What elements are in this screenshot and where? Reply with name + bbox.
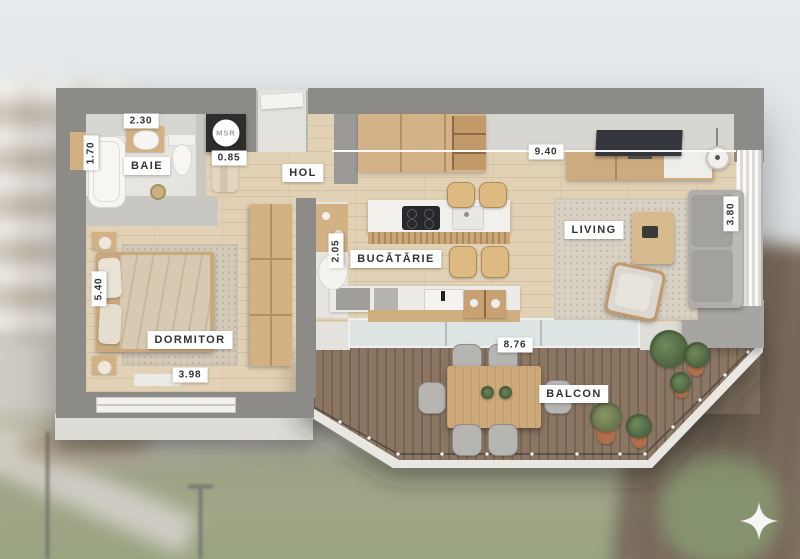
balcony-chair — [452, 424, 482, 456]
bathroom-vanity — [126, 126, 164, 152]
shower-drain — [150, 184, 166, 200]
table-plant — [481, 386, 494, 399]
room-label-balcon: BALCON — [539, 385, 608, 403]
counter-shelf-boxes — [464, 290, 506, 318]
armchair — [603, 261, 667, 323]
window-bedroom — [96, 397, 236, 413]
pendant-cord — [716, 128, 718, 146]
nightstand-lamp — [97, 360, 112, 375]
vase — [470, 299, 478, 307]
room-label-living: LIVING — [564, 221, 623, 239]
coffee-table — [632, 212, 674, 264]
balcony-table — [447, 366, 541, 428]
balcony-chair — [418, 382, 446, 414]
toilet-bowl — [172, 144, 192, 176]
msr-badge-label: MSR — [216, 129, 236, 138]
potted-plant — [590, 402, 622, 432]
island-faucet — [464, 212, 469, 217]
island-chair — [481, 246, 509, 278]
background-lamp-post-2 — [199, 487, 202, 559]
burner — [424, 209, 434, 219]
dimension-msr-width: 0.85 — [212, 151, 247, 166]
burner — [407, 219, 417, 229]
room-label-hol: HOL — [282, 164, 323, 182]
cabinet-divider — [444, 114, 446, 172]
dimension-bucatarie-depth: 2.05 — [329, 234, 344, 269]
entrance-niche — [256, 90, 308, 152]
toilet — [168, 134, 194, 176]
kitchen-tall-cabinets — [358, 114, 486, 172]
wall-bathroom-msr — [196, 114, 206, 226]
wall-entrance-stub — [246, 88, 256, 152]
potted-plant — [670, 372, 691, 393]
cooktop — [402, 206, 440, 230]
potted-plant — [626, 414, 652, 438]
dimension-living-depth: 3.80 — [724, 197, 739, 232]
wall-bedroom-hall — [296, 198, 316, 398]
msr-badge: MSR — [213, 120, 240, 147]
potted-plant — [650, 330, 688, 368]
tv-stand — [628, 156, 652, 159]
counter-faucet — [441, 291, 445, 301]
shelf-item — [322, 212, 330, 220]
counter-appliance — [336, 288, 370, 310]
table-decor — [642, 226, 658, 238]
burner — [424, 219, 434, 229]
table-plant — [499, 386, 512, 399]
background-lamp-post-1 — [46, 432, 49, 559]
sofa-cushion — [691, 250, 733, 302]
dimension-dormitor-length: 5.40 — [92, 272, 107, 307]
wardrobe-divider — [270, 204, 272, 366]
dimension-baie-width: 2.30 — [124, 114, 159, 129]
entrance-door — [261, 93, 304, 110]
island-slat-front — [368, 232, 510, 244]
door-mullion — [445, 320, 447, 346]
island-sink — [452, 206, 484, 230]
dimension-baie-depth: 1.70 — [84, 136, 99, 171]
window-glass-line — [97, 404, 235, 406]
tv — [595, 130, 682, 156]
island-chair — [479, 182, 507, 208]
background-lamp-arm — [188, 485, 213, 488]
room-label-bucatarie: BUCĂTĂRIE — [350, 250, 441, 268]
wardrobe — [250, 204, 292, 366]
nightstand-lamp — [98, 236, 112, 250]
room-label-dormitor: DORMITOR — [148, 331, 233, 349]
dimension-dormitor-width: 3.98 — [173, 368, 208, 383]
plant-pot — [597, 430, 615, 444]
wardrobe-shelf-line — [250, 314, 292, 316]
wall-top-right — [308, 88, 764, 114]
cabinet-open-shelf — [452, 116, 486, 170]
vanity-sink — [133, 130, 159, 150]
floorplan-render: MSR — [0, 0, 800, 559]
armchair-cushion — [614, 272, 654, 312]
shelf-line — [454, 152, 486, 154]
room-label-baie: BAIE — [124, 157, 170, 175]
vase — [491, 299, 500, 308]
wall-hall-stub — [334, 114, 358, 184]
dimension-living-kitchen-length: 9.40 — [529, 145, 564, 160]
door-mullion — [540, 320, 542, 346]
island-chair — [447, 182, 475, 208]
shelf-divider — [484, 290, 486, 318]
bed-pillow — [98, 303, 122, 344]
island-chair — [449, 246, 477, 278]
cabinet-divider — [400, 114, 402, 172]
pendant-bulb — [715, 155, 720, 160]
shelf-line — [454, 133, 486, 135]
burner — [407, 209, 417, 219]
wall-top-left — [56, 88, 256, 114]
counter-appliance — [374, 288, 398, 310]
potted-plant — [684, 342, 710, 368]
sparkle-icon — [740, 502, 778, 540]
balcony-chair — [488, 424, 518, 456]
dimension-balcon-length: 8.76 — [498, 338, 533, 353]
wardrobe-shelf-line — [250, 258, 292, 260]
